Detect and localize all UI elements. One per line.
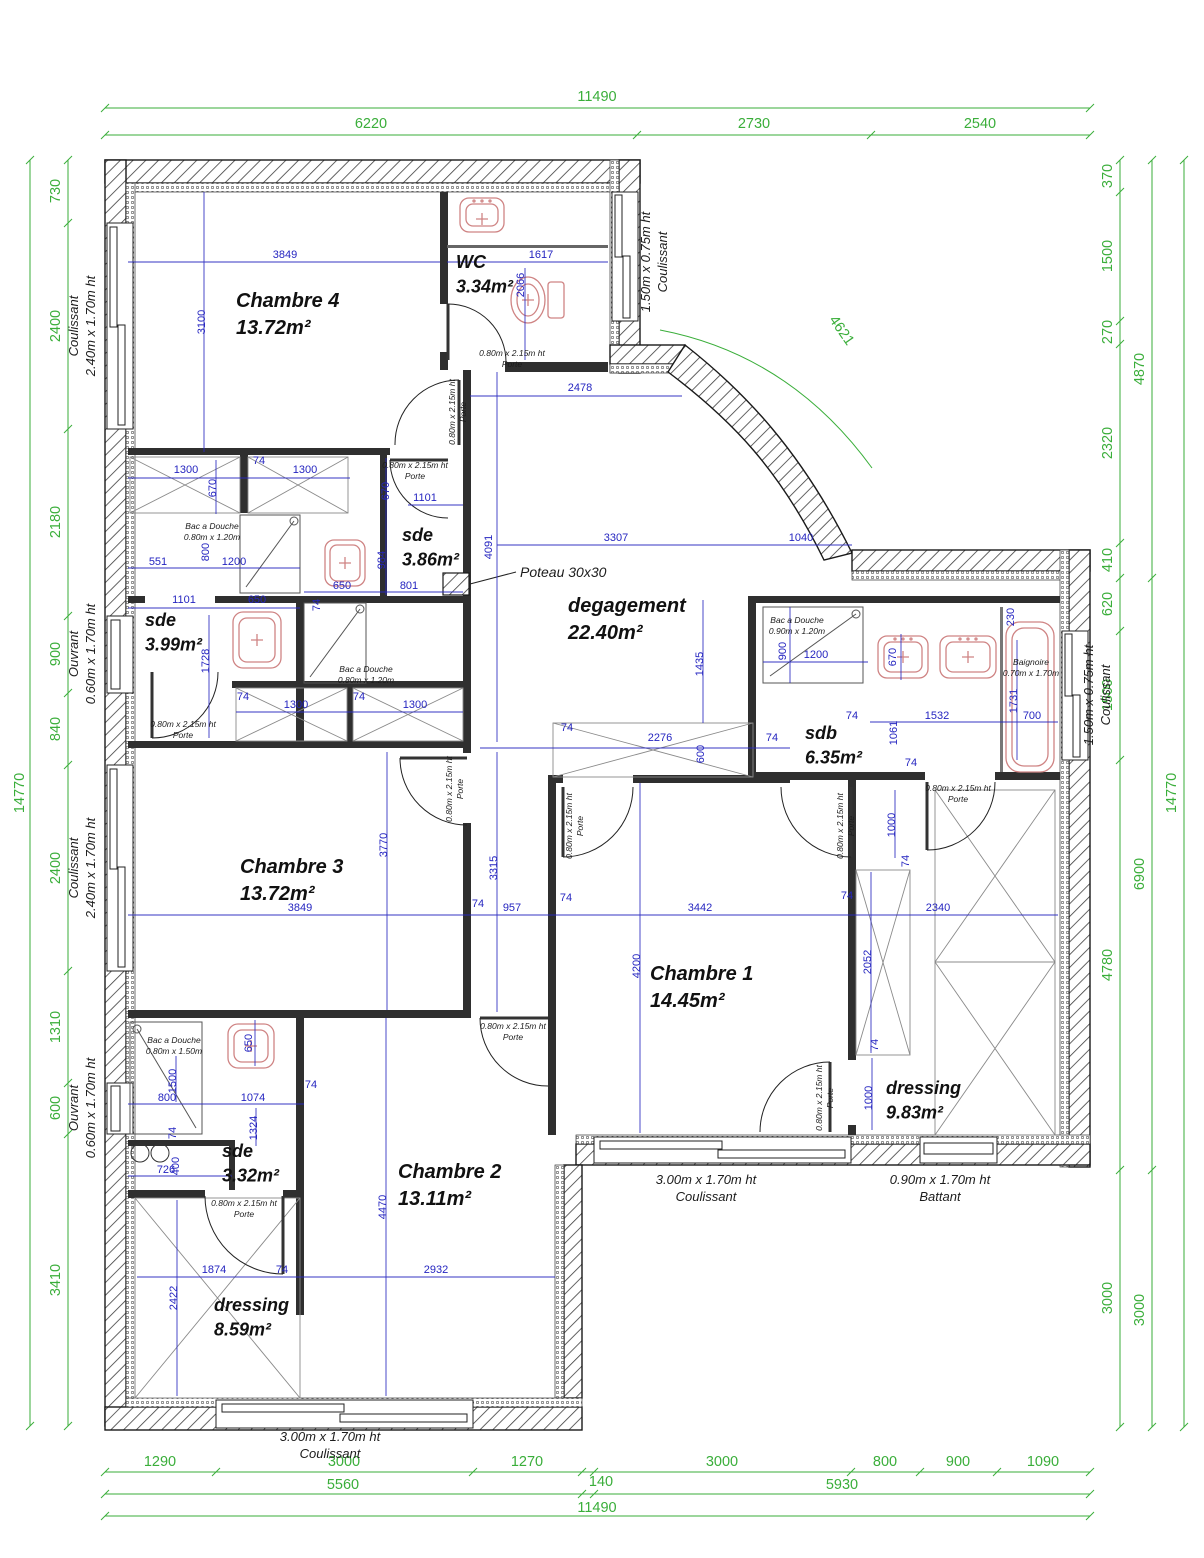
room-label-degagement: degagement22.40m² bbox=[567, 595, 687, 644]
window-ouvrant-left-upper bbox=[107, 616, 133, 693]
closet bbox=[353, 688, 463, 741]
dim-label-green: 370 bbox=[1100, 164, 1116, 188]
dim-label-blue: 400 bbox=[170, 1157, 182, 1175]
window-coulissant-left-top bbox=[107, 223, 133, 429]
annotation-label: 0.80m x 2.15m htPorte bbox=[480, 1021, 546, 1042]
dim-label-blue: 600 bbox=[695, 745, 707, 763]
annotation-label: 0.80m x 2.15m htPorte bbox=[211, 1198, 277, 1219]
annotation-label: Baignoire0.70m x 1.70m bbox=[1003, 657, 1059, 678]
annotation-label: 3.00m x 1.70m htCoulissant bbox=[280, 1429, 382, 1461]
dim-label-blue: 801 bbox=[400, 580, 418, 592]
dim-label-blue: 1074 bbox=[241, 1092, 265, 1104]
dim-label-green: 1270 bbox=[511, 1454, 543, 1470]
dim-label-blue: 1061 bbox=[888, 721, 900, 745]
dim-label-blue: 1040 bbox=[789, 532, 813, 544]
dim-label-blue: 74 bbox=[561, 722, 573, 734]
dim-label-blue: 1200 bbox=[804, 649, 828, 661]
dim-label-blue: 3770 bbox=[378, 833, 390, 857]
room-label-sde-3-99: sde3.99m² bbox=[145, 610, 203, 654]
annotation-label: Ouvrant0.60m x 1.70m ht bbox=[66, 1056, 98, 1158]
dim-label-green: 840 bbox=[48, 717, 64, 741]
floor-plan-page: Chambre 413.72m²WC3.34m²sde3.86m²sde3.99… bbox=[0, 0, 1204, 1558]
dim-label-blue: 2478 bbox=[568, 382, 592, 394]
dim-label-blue: 1200 bbox=[222, 556, 246, 568]
dim-label-green: 900 bbox=[48, 642, 64, 666]
dim-label-blue: 1300 bbox=[403, 699, 427, 711]
room-label-chambre-3: Chambre 313.72m² bbox=[240, 856, 343, 905]
dim-label-blue: 74 bbox=[841, 890, 853, 902]
dim-label-blue: 2276 bbox=[648, 732, 672, 744]
exterior-walls bbox=[105, 160, 1090, 1430]
annotation-label: 0.80m x 2.15m htPorte bbox=[150, 719, 216, 740]
dim-label-blue: 74 bbox=[353, 691, 365, 703]
dim-label-blue: 1300 bbox=[284, 699, 308, 711]
annotation-label: Coulissant2.40m x 1.70m ht bbox=[66, 816, 98, 919]
sink-sde-399 bbox=[233, 612, 281, 668]
window-coulissant-chambre1 bbox=[594, 1137, 851, 1163]
dim-label-blue: 74 bbox=[560, 892, 572, 904]
dim-label-green: 140 bbox=[589, 1474, 613, 1490]
room-label-dressing-8-59: dressing8.59m² bbox=[214, 1295, 289, 1339]
dim-label-blue: 74 bbox=[311, 599, 323, 611]
dim-label-blue: 230 bbox=[1005, 608, 1017, 626]
dim-label-blue: 800 bbox=[200, 543, 212, 561]
dim-label-blue: 74 bbox=[305, 1079, 317, 1091]
annotation-label: 3.00m x 1.70m htCoulissant bbox=[656, 1172, 758, 1204]
dim-label-blue: 1101 bbox=[172, 594, 196, 606]
dim-label-green: 14770 bbox=[1164, 773, 1180, 813]
dim-label-blue: 1300 bbox=[293, 464, 317, 476]
dim-label-green: 11490 bbox=[577, 1500, 616, 1516]
annotation-label: Ouvrant0.60m x 1.70m ht bbox=[66, 602, 98, 704]
dim-label-green: 800 bbox=[873, 1454, 897, 1470]
dim-label-blue: 1101 bbox=[413, 492, 437, 504]
dim-label-blue: 1000 bbox=[886, 813, 898, 837]
dim-label-blue: 650 bbox=[248, 594, 266, 606]
window-coulissant-wc bbox=[612, 192, 638, 321]
annotation-label: 0.80m x 2.15m htPorte bbox=[814, 1065, 835, 1131]
curved-wall bbox=[668, 345, 852, 560]
room-label-wc: WC3.34m² bbox=[456, 252, 514, 296]
dim-label-blue: 1617 bbox=[529, 249, 553, 261]
dim-label-green: 3410 bbox=[48, 1264, 64, 1296]
dim-label-blue: 551 bbox=[149, 556, 167, 568]
dim-label-blue: 1874 bbox=[202, 1264, 226, 1276]
annotation-label: Bac a Douche0.80m x 1.20m bbox=[338, 664, 394, 685]
annotation-label: 1.50m x 0.75m htCoulissant bbox=[1081, 643, 1113, 745]
labels-layer: Chambre 413.72m²WC3.34m²sde3.86m²sde3.99… bbox=[12, 89, 1180, 1516]
room-label-sde-3-86: sde3.86m² bbox=[402, 525, 460, 569]
dim-label-blue: 957 bbox=[503, 902, 521, 914]
dim-label-green: 4621 bbox=[825, 313, 857, 349]
dim-label-blue: 1435 bbox=[694, 652, 706, 676]
sink-wc bbox=[460, 198, 504, 232]
dim-label-blue: 74 bbox=[253, 455, 265, 467]
window-coulissant-left-mid bbox=[107, 765, 133, 971]
basin-double bbox=[131, 1144, 169, 1162]
room-label-chambre-1: Chambre 114.45m² bbox=[650, 963, 753, 1012]
dim-label-green: 410 bbox=[1100, 548, 1116, 572]
shower-tray bbox=[240, 515, 300, 593]
dim-label-blue: 650 bbox=[243, 1034, 255, 1052]
annotation-label: 0.90m x 1.70m htBattant bbox=[890, 1172, 992, 1204]
dim-label-blue: 74 bbox=[846, 710, 858, 722]
dim-label-green: 730 bbox=[48, 179, 64, 203]
dim-label-blue: 984 bbox=[376, 551, 388, 569]
annotation-label: Bac a Douche0.80m x 1.20m bbox=[184, 521, 240, 542]
dim-label-blue: 3849 bbox=[273, 249, 297, 261]
dim-label-green: 1500 bbox=[1100, 240, 1116, 272]
dim-label-blue: 4470 bbox=[377, 1195, 389, 1219]
dim-label-blue: 3307 bbox=[604, 532, 628, 544]
dim-label-blue: 1500 bbox=[167, 1069, 179, 1093]
dim-label-blue: 1532 bbox=[925, 710, 949, 722]
window-battant-dressing bbox=[920, 1137, 997, 1163]
dim-label-green: 620 bbox=[1100, 592, 1116, 616]
dim-label-green: 600 bbox=[48, 1096, 64, 1120]
dim-label-blue: 2066 bbox=[515, 273, 527, 297]
dim-label-green: 2400 bbox=[48, 852, 64, 884]
dim-label-blue: 74 bbox=[905, 757, 917, 769]
dim-label-blue: 74 bbox=[900, 855, 912, 867]
poteau-leader bbox=[470, 572, 516, 584]
dim-label-blue: 1300 bbox=[174, 464, 198, 476]
dim-label-blue: 1000 bbox=[863, 1086, 875, 1110]
dim-label-green: 3000 bbox=[1100, 1282, 1116, 1314]
sink-sdb-2 bbox=[940, 636, 996, 678]
dim-label-green: 1090 bbox=[1027, 1454, 1059, 1470]
dim-label-blue: 800 bbox=[158, 1092, 176, 1104]
dim-label-blue: 3100 bbox=[196, 310, 208, 334]
dim-label-blue: 670 bbox=[207, 479, 219, 497]
dim-label-green: 2320 bbox=[1100, 427, 1116, 459]
dim-label-blue: 74 bbox=[237, 691, 249, 703]
dim-label-green: 270 bbox=[1100, 320, 1116, 344]
dim-label-blue: 74 bbox=[472, 898, 484, 910]
dim-label-green: 3000 bbox=[706, 1454, 738, 1470]
dim-label-blue: 2340 bbox=[926, 902, 950, 914]
dim-label-blue: 1324 bbox=[248, 1116, 260, 1140]
dim-label-blue: 4200 bbox=[631, 954, 643, 978]
dim-label-blue: 900 bbox=[777, 642, 789, 660]
dim-label-green: 4870 bbox=[1132, 353, 1148, 385]
room-label-dressing-9-83: dressing9.83m² bbox=[886, 1078, 961, 1122]
dim-label-green: 5560 bbox=[327, 1477, 359, 1493]
dim-label-blue: 74 bbox=[766, 732, 778, 744]
room-label-chambre-2: Chambre 213.11m² bbox=[398, 1161, 501, 1210]
dim-label-blue: 74 bbox=[167, 1127, 179, 1139]
sink-sdb-1 bbox=[878, 636, 928, 678]
floor-plan-drawing: Chambre 413.72m²WC3.34m²sde3.86m²sde3.99… bbox=[0, 0, 1204, 1558]
dim-label-green: 2180 bbox=[48, 506, 64, 538]
dim-label-blue: 1728 bbox=[200, 649, 212, 673]
dimension-lines-blue bbox=[128, 192, 1058, 1396]
dim-label-green: 3000 bbox=[1132, 1294, 1148, 1326]
window-coulissant-bottom-left bbox=[216, 1400, 473, 1428]
dim-label-blue: 3315 bbox=[488, 856, 500, 880]
annotation-label: Bac a Douche0.90m x 1.20m bbox=[769, 615, 825, 636]
annotation-label: 1.50m x 0.75m htCoulissant bbox=[638, 210, 670, 312]
closet bbox=[935, 962, 1055, 1135]
dim-label-green: 2540 bbox=[964, 116, 996, 132]
annotation-label: 0.80m x 2.15m htPorte bbox=[382, 460, 448, 481]
dim-label-green: 11490 bbox=[577, 89, 616, 105]
dim-label-blue: 3849 bbox=[288, 902, 312, 914]
annotation-label: Poteau 30x30 bbox=[520, 564, 607, 580]
window-ouvrant-left-lower bbox=[107, 1083, 133, 1134]
dim-label-blue: 2422 bbox=[168, 1286, 180, 1310]
annotation-label: Coulissant2.40m x 1.70m ht bbox=[66, 274, 98, 377]
dim-label-green: 1290 bbox=[144, 1454, 176, 1470]
room-label-sdb: sdb6.35m² bbox=[805, 723, 863, 767]
dim-label-green: 6900 bbox=[1132, 858, 1148, 890]
dim-label-green: 5930 bbox=[826, 1477, 858, 1493]
closet bbox=[935, 790, 1055, 962]
dim-label-green: 2730 bbox=[738, 116, 770, 132]
dim-label-green: 1310 bbox=[48, 1011, 64, 1043]
dim-label-blue: 650 bbox=[333, 580, 351, 592]
room-label-chambre-4: Chambre 413.72m² bbox=[236, 290, 339, 339]
dim-label-green: 900 bbox=[946, 1454, 970, 1470]
dim-label-blue: 700 bbox=[1023, 710, 1041, 722]
dim-label-blue: 670 bbox=[887, 648, 899, 666]
annotation-label: 0.80m x 2.15m htPorte bbox=[564, 793, 585, 859]
dim-label-green: 6220 bbox=[355, 116, 387, 132]
dim-label-blue: 3442 bbox=[688, 902, 712, 914]
windows bbox=[107, 192, 1088, 1428]
dim-label-blue: 74 bbox=[276, 1264, 288, 1276]
dim-label-blue: 4091 bbox=[483, 535, 495, 559]
dim-label-blue: 1731 bbox=[1008, 689, 1020, 713]
dim-label-blue: 2052 bbox=[862, 950, 874, 974]
dim-label-green: 2400 bbox=[48, 310, 64, 342]
dim-label-blue: 670 bbox=[380, 482, 392, 500]
dim-label-blue: 74 bbox=[869, 1039, 881, 1051]
dim-label-blue: 2932 bbox=[424, 1264, 448, 1276]
dim-label-green: 14770 bbox=[12, 773, 28, 813]
annotation-label: Bac a Douche0.80m x 1.50m bbox=[146, 1035, 202, 1056]
dim-label-green: 4780 bbox=[1100, 949, 1116, 981]
closet bbox=[236, 688, 347, 741]
annotation-label: 0.80m x 2.15m htPorte bbox=[444, 756, 465, 822]
